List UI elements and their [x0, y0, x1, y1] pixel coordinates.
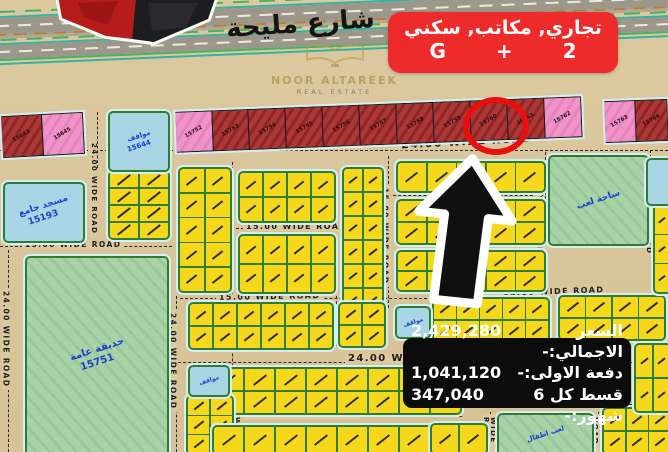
plot-block [188, 302, 334, 350]
plot-number-mark [270, 180, 281, 189]
plot-number-mark [368, 272, 377, 280]
plot-cell [190, 327, 212, 348]
plot-number: 15752 [184, 124, 204, 139]
plot-number-mark [658, 358, 666, 365]
plot-cell [276, 427, 305, 452]
plot-cell [516, 163, 544, 191]
plot-block [238, 234, 336, 294]
road-centerline [336, 296, 337, 346]
plot-cell [310, 304, 332, 325]
price-row-installment: قسط كل 6 شهور:- 347,040 [411, 384, 623, 426]
plot-cell [276, 369, 305, 390]
plot-number-mark [317, 180, 328, 189]
plot-cell [312, 198, 334, 221]
plot-number: 15762 [553, 110, 573, 125]
zoning-info-box: تجاري, مكاتب, سكني G + 2 [388, 12, 618, 73]
plot-number-mark [117, 174, 130, 185]
plot-cell [180, 268, 204, 291]
plot-number-mark [315, 333, 326, 342]
zoning-floors: 2 [563, 41, 577, 61]
installment-label: قسط كل 6 شهور:- [484, 384, 623, 426]
plot-number-mark [349, 200, 358, 208]
price-info-box: السعر الاجمالي:- 2,429,280 دفعة الاولى:-… [403, 338, 631, 408]
plot-number-mark [212, 274, 224, 284]
plot-number-mark [246, 245, 257, 254]
plot-cell [180, 218, 204, 241]
installment-value: 347,040 [411, 384, 484, 426]
plot-number-mark [253, 374, 267, 386]
plot-cell [636, 379, 652, 411]
plot-number: 15755 [295, 120, 315, 135]
highlight-circle [463, 97, 529, 155]
plot-cell [613, 297, 638, 317]
plot-cell [188, 416, 209, 434]
plot-cell [364, 217, 382, 239]
plot-number-mark [467, 434, 480, 444]
plot-number: 15757 [369, 117, 389, 132]
plot-cell [140, 172, 168, 187]
plot-number-mark [117, 225, 130, 236]
plot-block [338, 302, 386, 348]
plot-number-mark [246, 180, 257, 189]
plot-cell [338, 427, 367, 452]
plot-15643: 15643 [0, 114, 44, 158]
road-label: 24.00 WIDE ROAD [90, 140, 97, 237]
plot-15645: 15645 [41, 112, 86, 156]
plot-cell [214, 327, 236, 348]
plot-cell [110, 223, 138, 238]
plot-cell [344, 241, 362, 263]
plot-number-mark [646, 324, 658, 334]
plot-number-mark [523, 256, 536, 267]
plot-15755: 15755 [285, 106, 325, 148]
plot-cell [432, 425, 458, 452]
plot-cell [627, 432, 648, 452]
mosque-plot: مسجد جامع15193 [3, 182, 85, 243]
plot-number: 15758 [405, 116, 425, 131]
plot-number-mark [368, 248, 377, 256]
plot-cell [188, 397, 209, 415]
plot-cell [516, 272, 544, 290]
plot-number-mark [345, 374, 359, 386]
plot-number-mark [532, 305, 543, 314]
public-park-plot: حديقة عامة15751 [25, 256, 169, 452]
plot-number-mark [349, 248, 358, 256]
plot-cell [639, 319, 664, 339]
plot-cell [400, 427, 429, 452]
plot-number-mark [212, 176, 224, 186]
plot-number-mark [345, 434, 359, 446]
plot-number-mark [376, 434, 390, 446]
plot-number-mark [368, 331, 378, 340]
open-book-icon [304, 44, 366, 70]
plot-block [212, 425, 462, 452]
plot-number-mark [317, 245, 328, 254]
total-price-label: السعر الاجمالي:- [501, 320, 623, 362]
plot-cell [586, 297, 611, 317]
plot-number-mark [523, 206, 536, 217]
plot-number-mark [267, 310, 278, 319]
zoning-usage-label: تجاري, مكاتب, سكني [388, 18, 618, 40]
plot-cell [264, 198, 286, 221]
plot-number-mark [186, 225, 198, 235]
plot-number-mark [376, 397, 390, 409]
plot-number-mark [317, 205, 328, 214]
road-label: 24.00 WIDE ROAD [2, 288, 10, 390]
plot-number-mark [632, 438, 642, 447]
plot-number-mark [439, 434, 452, 444]
commercial-plot-group: 1564315645 [1, 112, 85, 158]
plot-cell [636, 345, 652, 377]
listing-map-image: 24.00 WIDE ROAD15.00 WIDE ROAD15.00 WIDE… [0, 0, 668, 452]
plot-cell [188, 435, 209, 452]
plot-cell [655, 264, 668, 292]
plot-number-mark [196, 310, 207, 319]
plot-number-mark [349, 176, 358, 184]
plot-cell [288, 265, 310, 292]
plot-cell [110, 172, 138, 187]
plot-number-mark [147, 225, 160, 236]
scribbled-logo [48, 0, 230, 49]
zoning-plus: + [496, 41, 513, 61]
plot-cell [364, 193, 382, 215]
plot-number-mark [222, 434, 236, 446]
plot-number-mark [270, 274, 281, 283]
plot-number-mark [368, 310, 378, 319]
plot-block [178, 167, 232, 293]
plot-number-mark [147, 208, 160, 219]
plot-block [342, 167, 384, 313]
plot-cell [307, 392, 336, 413]
plot-cell [516, 223, 544, 243]
plot-number-mark [212, 225, 224, 235]
plot-number-mark [293, 245, 304, 254]
plot-cell [286, 304, 308, 325]
plot-cell [245, 392, 274, 413]
plot-block [238, 171, 336, 223]
plot-number: 15756 [332, 119, 352, 134]
plot-block [653, 204, 668, 294]
plot-number-mark [193, 421, 203, 430]
plot-15757: 15757 [358, 103, 398, 145]
plot-number-mark [659, 275, 667, 282]
plot-cell [340, 326, 361, 346]
plot-number-mark [407, 434, 421, 446]
plot-number-mark [654, 438, 664, 447]
plot-number: 15754 [258, 121, 278, 136]
parking-plot-small-2: مواقف [188, 365, 230, 397]
plot-cell [245, 427, 274, 452]
plot-cell [312, 236, 334, 263]
plot-cell [655, 235, 668, 263]
plot-number-mark [640, 358, 648, 365]
plot-number-mark [147, 191, 160, 202]
plot-cell [214, 304, 236, 325]
plot-number-mark [244, 333, 255, 342]
plot-number-mark [317, 274, 328, 283]
plot-number-mark [291, 310, 302, 319]
plot-cell [338, 392, 367, 413]
plot-cell [526, 299, 548, 319]
agency-name: NOOR ALTAREEK [262, 74, 407, 87]
plot-label: مواقف [198, 374, 220, 388]
plot-cell [460, 425, 486, 452]
plot-cell [276, 392, 305, 413]
plot-number-mark [220, 333, 231, 342]
plot-cell [110, 206, 138, 221]
plot-cell [516, 252, 544, 270]
plot-cell [238, 304, 260, 325]
plot-number-mark [293, 274, 304, 283]
plot-cell [312, 265, 334, 292]
plot-number-mark [640, 391, 648, 398]
plot-cell [245, 369, 274, 390]
plot-number-mark [659, 246, 667, 253]
commercial-plot-group: 1576315764 [604, 99, 668, 143]
plot-cell [264, 173, 286, 196]
plot-cell [312, 173, 334, 196]
plot-number-mark [147, 174, 160, 185]
plot-cell [307, 427, 336, 452]
plot-cell [344, 169, 362, 191]
plot-15753: 15753 [211, 109, 251, 151]
plot-number-mark [186, 176, 198, 186]
plot-number: 15764 [642, 113, 662, 128]
plot-cell [262, 327, 284, 348]
plot-number-mark [193, 401, 203, 410]
plot-number: 15759 [442, 114, 462, 129]
downpayment-value: 1,041,120 [411, 362, 501, 383]
plot-number-mark [315, 397, 329, 409]
plot-cell [211, 397, 232, 415]
plot-number-mark [186, 274, 198, 284]
plot-cell [240, 236, 262, 263]
plot-15763: 15763 [603, 100, 637, 143]
plot-number-mark [244, 310, 255, 319]
plot-number-mark [368, 200, 377, 208]
plot-number-mark [216, 401, 226, 410]
plot-cell [516, 201, 544, 221]
blue-plot-partial [646, 158, 668, 206]
plot-cell [340, 304, 361, 324]
plot-cell [363, 304, 384, 324]
plot-cell [655, 206, 668, 234]
plot-number-mark [658, 391, 666, 398]
plot-number: 15753 [221, 123, 241, 138]
plot-number-mark [368, 176, 377, 184]
plot-cell [369, 392, 398, 413]
plot-number-mark [345, 310, 355, 319]
zoning-height-label: G + 2 [388, 41, 618, 61]
agency-watermark: NOOR ALTAREEK REAL ESTATE [262, 44, 407, 96]
plot-cell [344, 193, 362, 215]
plot-cell [214, 427, 243, 452]
plot-cell [369, 369, 398, 390]
plot-cell [310, 327, 332, 348]
plot-number-mark [117, 191, 130, 202]
plot-cell [206, 169, 230, 192]
plot-cell [240, 265, 262, 292]
plot-number-mark [293, 180, 304, 189]
plot-number-mark [523, 227, 536, 238]
plot-number-mark [284, 374, 298, 386]
plot-number-mark [376, 374, 390, 386]
plot-block [430, 423, 488, 452]
plot-number-mark [654, 415, 664, 424]
agency-tagline: REAL ESTATE [262, 88, 407, 96]
plot-number-mark [270, 205, 281, 214]
plot-block [634, 343, 668, 413]
plot-cell [338, 369, 367, 390]
plot-cell [140, 189, 168, 204]
plot-number-mark [349, 272, 358, 280]
plot-number-mark [523, 171, 536, 182]
plot-number-mark [566, 302, 578, 312]
plot-cell [307, 369, 336, 390]
plot-cell [654, 379, 668, 411]
plot-number-mark [523, 275, 536, 286]
plot-15752: 15752 [174, 110, 214, 152]
plot-number-mark [284, 434, 298, 446]
plot-number-mark [593, 302, 605, 312]
plot-cell [344, 265, 362, 287]
plot-number-mark [186, 200, 198, 210]
plot-number-mark [246, 205, 257, 214]
plot-number-mark [345, 397, 359, 409]
plot-cell [206, 218, 230, 241]
parking-plot-15644: مواقف15644 [108, 111, 170, 172]
plot-cell [288, 236, 310, 263]
plot-cell [240, 198, 262, 221]
plot-cell [560, 297, 585, 317]
plot-cell [649, 432, 668, 452]
plot-cell [369, 427, 398, 452]
plot-number-mark [267, 333, 278, 342]
plot-cell [286, 327, 308, 348]
plot-number-mark [315, 310, 326, 319]
plot-number-mark [646, 302, 658, 312]
plot-number-mark [193, 440, 203, 449]
plot-cell [206, 243, 230, 266]
plot-cell [110, 189, 138, 204]
plot-number-mark [212, 250, 224, 260]
plot-number-mark [632, 415, 642, 424]
plot-number-mark [220, 310, 231, 319]
plot-block [108, 170, 170, 240]
plot-number-mark [196, 333, 207, 342]
plot-15758: 15758 [395, 102, 435, 144]
pointer-arrow-icon [407, 152, 519, 310]
plot-number-mark [315, 434, 329, 446]
plot-cell [238, 327, 260, 348]
plot-cell [180, 169, 204, 192]
plot-cell [288, 173, 310, 196]
plot-number-mark [609, 438, 619, 447]
plot-number-mark [246, 274, 257, 283]
zoning-g: G [429, 41, 445, 61]
plot-cell [364, 241, 382, 263]
playground-plot: ساحة لعب [548, 155, 649, 246]
plot-cell [654, 345, 668, 377]
downpayment-label: دفعة الاولى:- [517, 362, 623, 383]
plot-cell [364, 265, 382, 287]
plot-cell [344, 217, 362, 239]
plot-cell [639, 297, 664, 317]
plot-cell [363, 326, 384, 346]
plot-number-mark [349, 224, 358, 232]
plot-number-mark [117, 208, 130, 219]
plot-number: 15763 [610, 114, 630, 129]
road-label: 15.00 WIDE ROAD [243, 223, 350, 231]
plot-15764: 15764 [634, 99, 668, 142]
plot-number-mark [619, 302, 631, 312]
plot-number-mark [270, 245, 281, 254]
plot-cell [262, 304, 284, 325]
plot-cell [190, 304, 212, 325]
plot-cell [264, 265, 286, 292]
price-row-downpayment: دفعة الاولى:- 1,041,120 [411, 362, 623, 383]
plot-number-mark [291, 333, 302, 342]
plot-cell [180, 243, 204, 266]
plot-cell [364, 169, 382, 191]
plot-cell [140, 206, 168, 221]
plot-cell [240, 173, 262, 196]
plot-cell [206, 194, 230, 217]
plot-number-mark [368, 224, 377, 232]
price-row-total: السعر الاجمالي:- 2,429,280 [411, 320, 623, 362]
plot-number-mark [284, 397, 298, 409]
plot-number-mark [186, 250, 198, 260]
plot-cell [180, 194, 204, 217]
plot-label: لعب اطفال [525, 424, 565, 445]
plot-number-mark [315, 374, 329, 386]
plot-cell [604, 432, 625, 452]
plot-number: 15643 [12, 129, 31, 144]
plot-cell [264, 236, 286, 263]
plot-number-mark [253, 397, 267, 409]
plot-number-mark [293, 205, 304, 214]
plot-cell [206, 268, 230, 291]
plot-15754: 15754 [248, 108, 288, 150]
plot-cell [288, 198, 310, 221]
plot-number-mark [253, 434, 267, 446]
road-centerline [0, 150, 668, 151]
plot-number-mark [212, 200, 224, 210]
plot-15756: 15756 [321, 105, 361, 147]
plot-cell [140, 223, 168, 238]
plot-number-mark [345, 331, 355, 340]
plot-number: 15645 [53, 126, 72, 141]
plot-label: ساحة لعب [575, 188, 622, 213]
road-label: 24.00 WIDE ROAD [169, 310, 177, 412]
total-price-value: 2,429,280 [411, 320, 501, 362]
plot-15762: 15762 [543, 96, 583, 138]
plot-number-mark [659, 217, 667, 224]
